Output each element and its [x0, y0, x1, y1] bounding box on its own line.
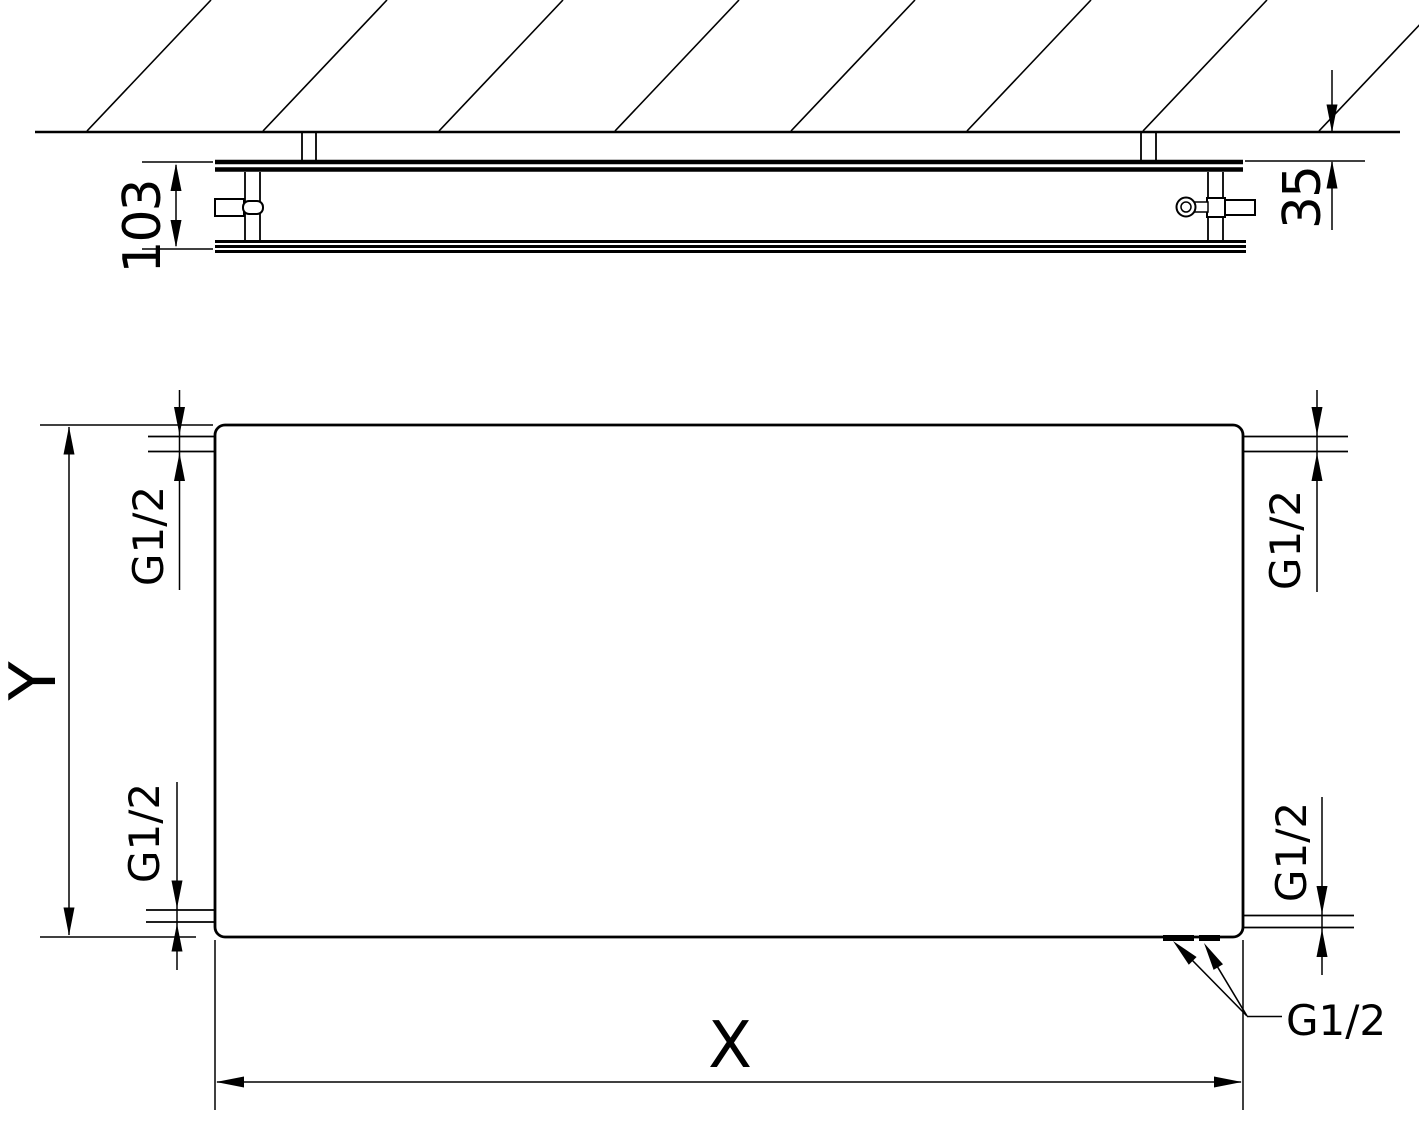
- thread-label-top-right: G1/2: [1261, 490, 1310, 590]
- thread-label-top-left: G1/2: [124, 486, 173, 586]
- technical-drawing: 103 35: [0, 0, 1419, 1123]
- wall-distance-label: 35: [1273, 167, 1333, 229]
- radiator-dimension-drawing: 103 35: [0, 0, 1419, 1123]
- radiator-front-panel: [215, 242, 1246, 252]
- depth-label: 103: [113, 180, 173, 273]
- thread-label-bottom-left: G1/2: [120, 783, 169, 883]
- width-axis-label: X: [708, 1009, 752, 1083]
- radiator-front-outline: [215, 425, 1243, 937]
- air-vent-valve-right: [1177, 198, 1256, 218]
- height-axis-label: Y: [0, 661, 71, 702]
- thread-label-bottom-right: G1/2: [1267, 802, 1316, 902]
- side-plug-left: [215, 199, 263, 216]
- thread-label-bottom-center: G1/2: [1286, 996, 1386, 1045]
